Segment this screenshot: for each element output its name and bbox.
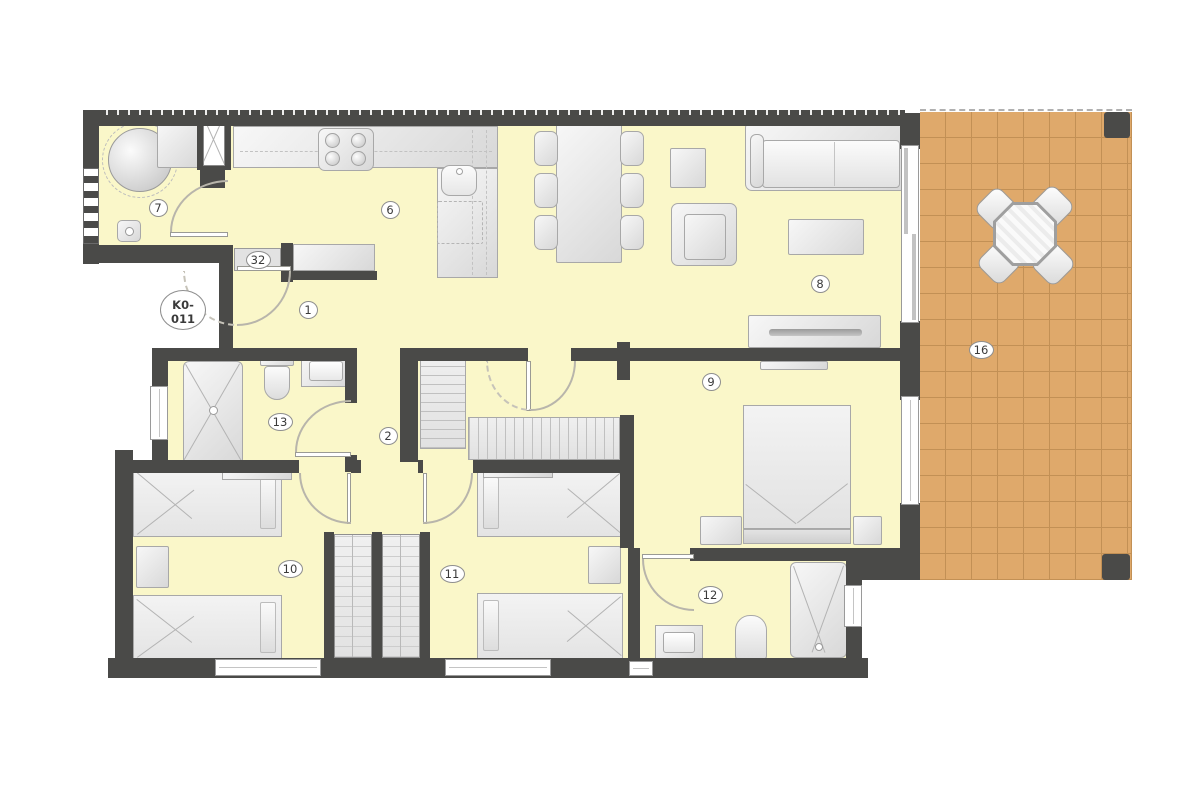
dining-chair	[534, 131, 558, 166]
dining-chair	[534, 215, 558, 250]
bed-fold-line	[567, 596, 621, 642]
shower-drain-icon	[209, 406, 218, 415]
glass-line	[159, 389, 160, 437]
dining-table	[556, 123, 622, 263]
sofa-seat	[762, 140, 900, 188]
wall-room11-right	[620, 415, 634, 548]
wall-left-lower	[115, 450, 133, 678]
burner-icon	[351, 133, 366, 148]
washing-machine	[157, 124, 199, 168]
wall-bath12-corner	[858, 561, 920, 580]
window-room11	[445, 659, 551, 676]
terrace-pillar-bottom	[1102, 554, 1130, 580]
wall-bath12-right-b	[846, 625, 862, 660]
dining-chair	[620, 131, 644, 166]
dishwasher	[437, 201, 483, 244]
door-leaf-bath13	[295, 452, 351, 457]
bath12-window	[844, 585, 862, 627]
sliding-pane	[912, 234, 916, 320]
wall-left-upper	[83, 110, 99, 170]
bed-master	[743, 405, 851, 529]
burner-icon	[351, 151, 366, 166]
terrace-open-edge	[920, 109, 1132, 111]
bed-master-headboard	[743, 529, 851, 544]
wall-right-a	[900, 113, 920, 149]
armchair-cushion	[684, 214, 726, 260]
bed-fold-line	[797, 483, 848, 523]
sliding-pane	[904, 148, 908, 234]
bed-10b	[133, 595, 282, 660]
pillow	[483, 600, 499, 651]
pillow	[260, 602, 276, 653]
dining-chair	[620, 215, 644, 250]
pillow	[260, 476, 276, 529]
side-table	[670, 148, 706, 188]
glass-line	[910, 400, 911, 501]
stove	[318, 128, 374, 171]
nightstand-11	[588, 546, 621, 584]
wardrobe-room11	[382, 534, 420, 658]
unit-label-line1: K0-	[161, 298, 205, 312]
wall-room10-top	[115, 460, 299, 473]
bath13-window	[150, 386, 168, 440]
window-room10	[215, 659, 321, 676]
wardrobe-room10	[334, 534, 372, 658]
unit-label-line2: 011	[161, 312, 205, 326]
vent-line	[633, 668, 649, 669]
wall-bath12-left	[628, 548, 640, 660]
room9-window	[901, 396, 919, 505]
wall-room10-top-stub	[351, 460, 361, 473]
shower-13	[183, 361, 243, 465]
wall-top	[95, 110, 905, 126]
burner-icon	[325, 133, 340, 148]
sofa	[745, 121, 907, 191]
kitchen-sink	[441, 165, 477, 196]
floor-plan: K0- 011 126789101112131632	[0, 0, 1200, 800]
wall-room11-top-a	[418, 460, 423, 473]
nightstand-master-right	[853, 516, 882, 545]
sofa-seat-divider	[834, 142, 835, 186]
terrace-pillar-top	[1104, 112, 1130, 138]
wall-room11-top-b	[473, 460, 628, 473]
burner-icon	[325, 151, 340, 166]
wall-corridor-right	[400, 348, 418, 462]
hall-sideboard	[293, 244, 375, 271]
nightstand-10	[136, 546, 169, 588]
wall-bath13-top	[152, 348, 357, 361]
tv-icon	[769, 329, 862, 336]
sink-12	[655, 625, 703, 660]
shower-12	[790, 562, 847, 658]
dining-chair	[534, 173, 558, 208]
kitchen-counter-dash-2	[486, 130, 487, 275]
bed-fold-line	[745, 484, 796, 524]
unit-label: K0- 011	[160, 290, 206, 330]
wall-ward-divider-3	[420, 532, 430, 658]
tv-bench	[748, 315, 881, 348]
sofa-arm	[750, 134, 764, 188]
terrace-sliding-door	[901, 145, 919, 323]
walkin-wardrobe-side	[420, 355, 466, 449]
coffee-table	[788, 219, 864, 255]
glass-line	[449, 667, 547, 668]
wall-niche	[281, 271, 377, 280]
wall-bath13-right-a	[345, 361, 357, 403]
wall-right-b	[900, 321, 920, 400]
wall-right-c	[900, 503, 920, 563]
faucet-icon	[456, 168, 463, 175]
terrace-tiles	[920, 112, 1132, 580]
bed-11b	[477, 593, 623, 659]
floor-drain	[117, 220, 141, 242]
toilet-12	[735, 615, 767, 660]
shower-glass-line	[793, 566, 825, 653]
shower-glass-line	[812, 566, 844, 653]
door-leaf-utility	[170, 232, 228, 237]
wall-ward-divider-2	[372, 532, 382, 658]
walkin-wardrobe-band	[468, 417, 620, 460]
wall-ward-divider-1	[324, 532, 334, 658]
sink-13-basin	[309, 361, 343, 381]
drain-icon	[125, 227, 134, 236]
wall-utility-bottom	[83, 245, 233, 263]
shower-drain-icon	[815, 643, 823, 651]
glass-line	[853, 588, 854, 624]
armchair	[671, 203, 737, 266]
pillow	[483, 477, 499, 529]
sink-12-basin	[663, 632, 695, 653]
nightstand-master-left	[700, 516, 742, 545]
toilet-13-bowl	[264, 366, 290, 400]
louver-window	[83, 168, 99, 244]
vent-room12	[629, 661, 653, 676]
wall-room9-bottom	[690, 548, 907, 561]
glass-line	[219, 667, 317, 668]
wall-dressing-right	[617, 342, 630, 380]
dining-chair	[620, 173, 644, 208]
wall-dressing-top	[418, 348, 528, 361]
bed-11a	[477, 469, 623, 537]
bedroom9-shelf	[760, 361, 828, 370]
